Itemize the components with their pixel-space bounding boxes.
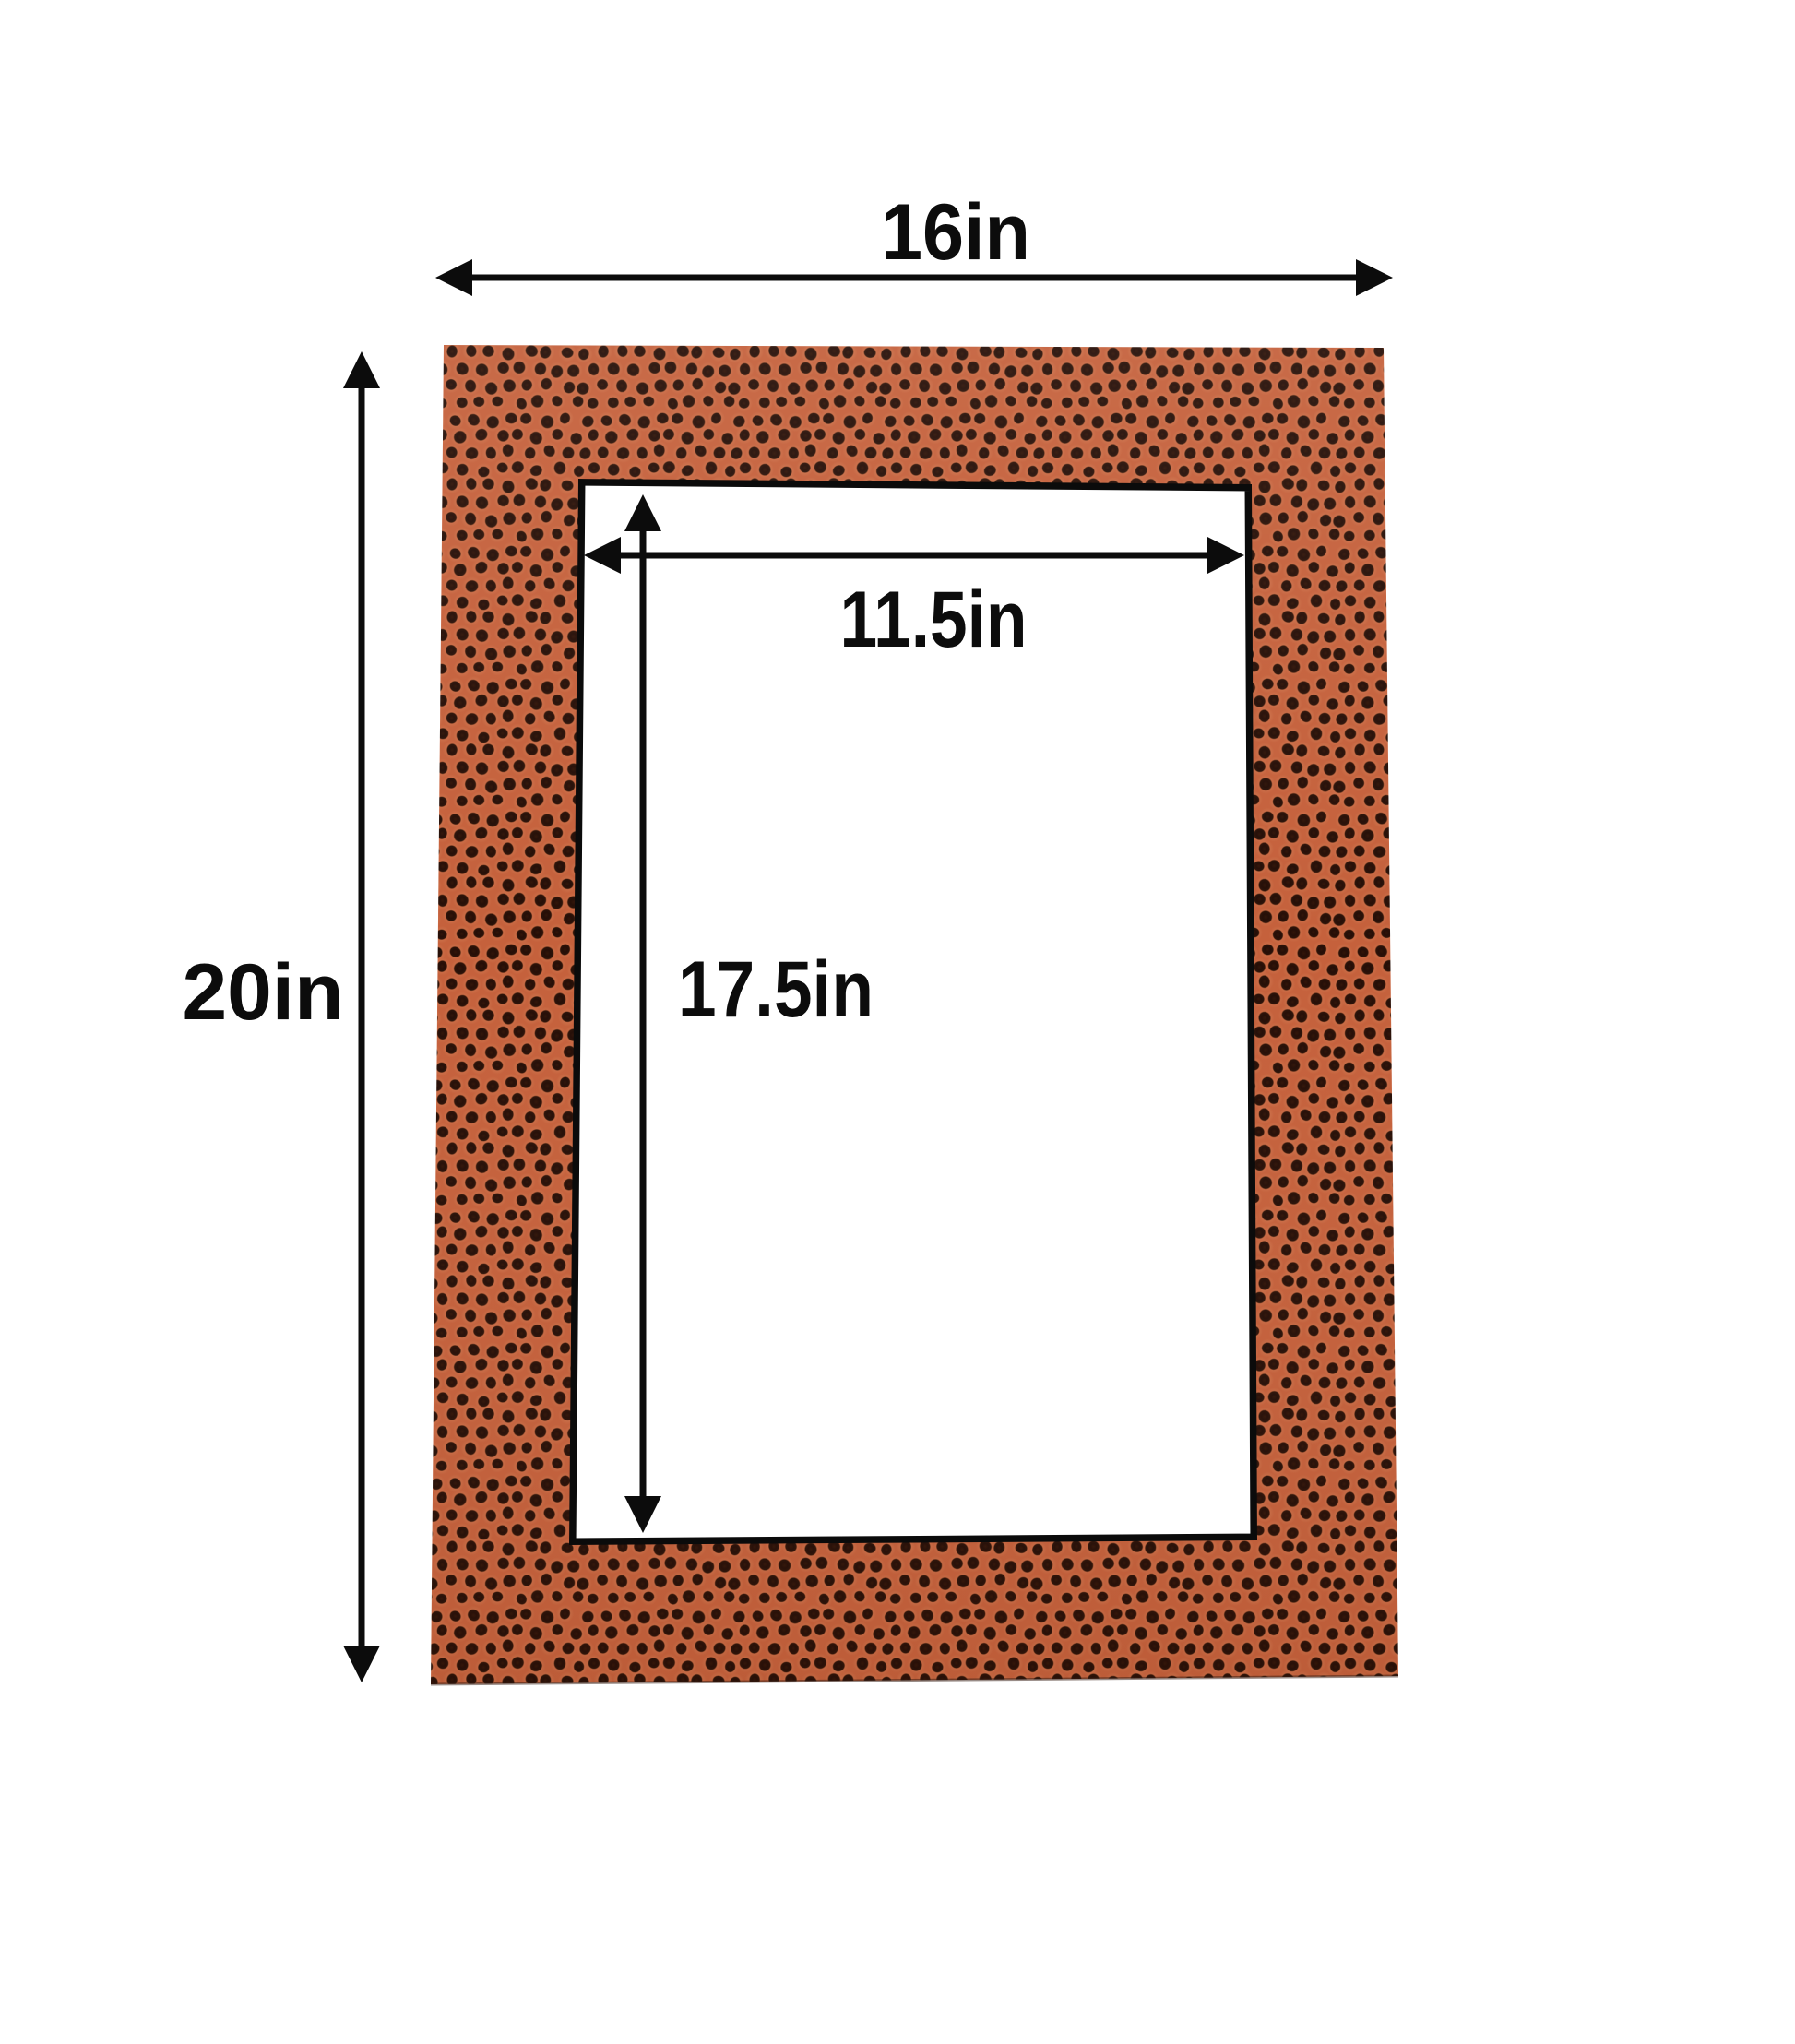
svg-text:20in: 20in bbox=[183, 948, 344, 1037]
svg-text:16in: 16in bbox=[881, 188, 1030, 277]
svg-text:17.5in: 17.5in bbox=[678, 945, 874, 1034]
svg-text:11.5in: 11.5in bbox=[840, 576, 1028, 664]
